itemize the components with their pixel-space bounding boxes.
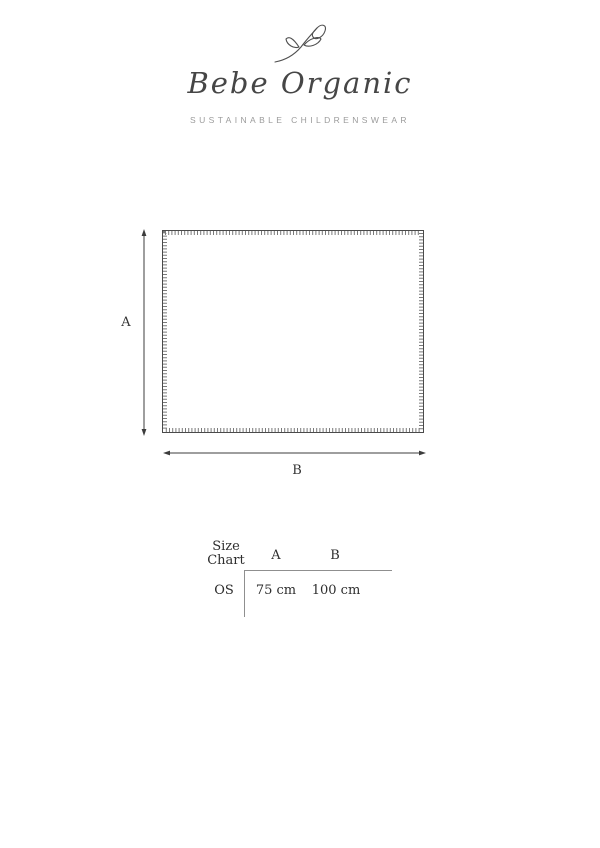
- table-vertical-rule: [244, 570, 245, 617]
- blanket-outline: [163, 231, 424, 433]
- size-chart-title: Size Chart: [198, 540, 254, 568]
- blanket-dimension-diagram: A B: [100, 210, 450, 490]
- branch-icon: [262, 23, 338, 69]
- height-dimension-label: A: [120, 315, 131, 330]
- column-header-a: A: [271, 548, 280, 563]
- size-chart-page: Bebe Organic SUSTAINABLE CHILDRENSWEAR A…: [0, 0, 600, 848]
- brand-name: Bebe Organic: [0, 66, 600, 100]
- table-horizontal-rule: [244, 570, 392, 571]
- width-dimension-arrow: [163, 451, 426, 456]
- measurement-b: 100 cm: [312, 583, 361, 598]
- height-dimension-arrow: [142, 229, 147, 436]
- width-dimension-label: B: [292, 463, 302, 478]
- size-label: OS: [214, 583, 234, 598]
- brand-tagline: SUSTAINABLE CHILDRENSWEAR: [0, 115, 600, 125]
- measurement-a: 75 cm: [256, 583, 296, 598]
- column-header-b: B: [330, 548, 340, 563]
